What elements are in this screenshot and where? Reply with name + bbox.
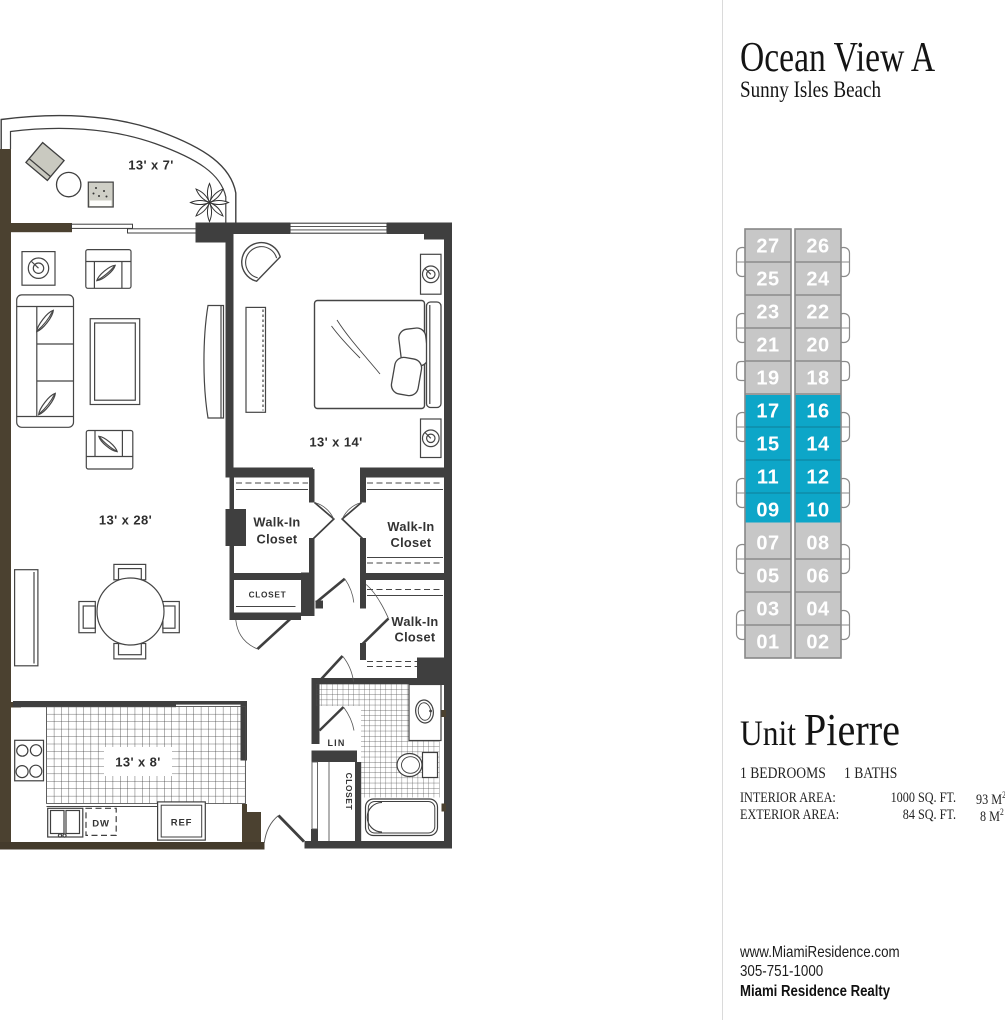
svg-text:Walk-In: Walk-In — [387, 519, 434, 534]
svg-text:25: 25 — [756, 269, 779, 291]
svg-text:Walk-In: Walk-In — [253, 515, 300, 530]
svg-text:Closet: Closet — [391, 535, 432, 550]
svg-text:03: 03 — [756, 599, 779, 621]
svg-text:DW: DW — [92, 819, 109, 830]
svg-text:17: 17 — [756, 401, 779, 423]
svg-text:06: 06 — [806, 566, 829, 588]
svg-text:13' x 8': 13' x 8' — [115, 755, 161, 770]
svg-text:Closet: Closet — [395, 630, 436, 645]
svg-text:01: 01 — [756, 632, 779, 654]
svg-text:13' x 7': 13' x 7' — [128, 158, 174, 173]
svg-text:08: 08 — [806, 533, 829, 555]
svg-text:20: 20 — [806, 335, 829, 357]
svg-text:10: 10 — [806, 500, 829, 522]
svg-text:LIN: LIN — [327, 738, 345, 748]
svg-text:02: 02 — [806, 632, 829, 654]
svg-text:14: 14 — [806, 434, 830, 456]
svg-text:21: 21 — [756, 335, 779, 357]
svg-text:26: 26 — [806, 236, 829, 258]
svg-text:24: 24 — [806, 269, 830, 291]
svg-text:REF: REF — [171, 818, 192, 829]
svg-text:Closet: Closet — [257, 532, 298, 547]
svg-text:27: 27 — [756, 236, 779, 258]
svg-text:CLOSET: CLOSET — [344, 773, 354, 811]
svg-text:12: 12 — [806, 467, 829, 489]
svg-text:07: 07 — [756, 533, 779, 555]
svg-text:Walk-In: Walk-In — [391, 614, 438, 629]
svg-text:13' x 14': 13' x 14' — [309, 435, 362, 450]
svg-text:16: 16 — [806, 401, 829, 423]
svg-text:15: 15 — [756, 434, 779, 456]
svg-text:09: 09 — [756, 500, 779, 522]
svg-text:18: 18 — [806, 368, 829, 390]
svg-text:11: 11 — [757, 467, 779, 489]
svg-text:05: 05 — [756, 566, 779, 588]
svg-text:CLOSET: CLOSET — [249, 590, 287, 600]
svg-text:04: 04 — [806, 599, 830, 621]
svg-text:19: 19 — [756, 368, 779, 390]
svg-text:13' x 28': 13' x 28' — [99, 513, 152, 528]
svg-text:22: 22 — [806, 302, 829, 324]
svg-text:23: 23 — [756, 302, 779, 324]
